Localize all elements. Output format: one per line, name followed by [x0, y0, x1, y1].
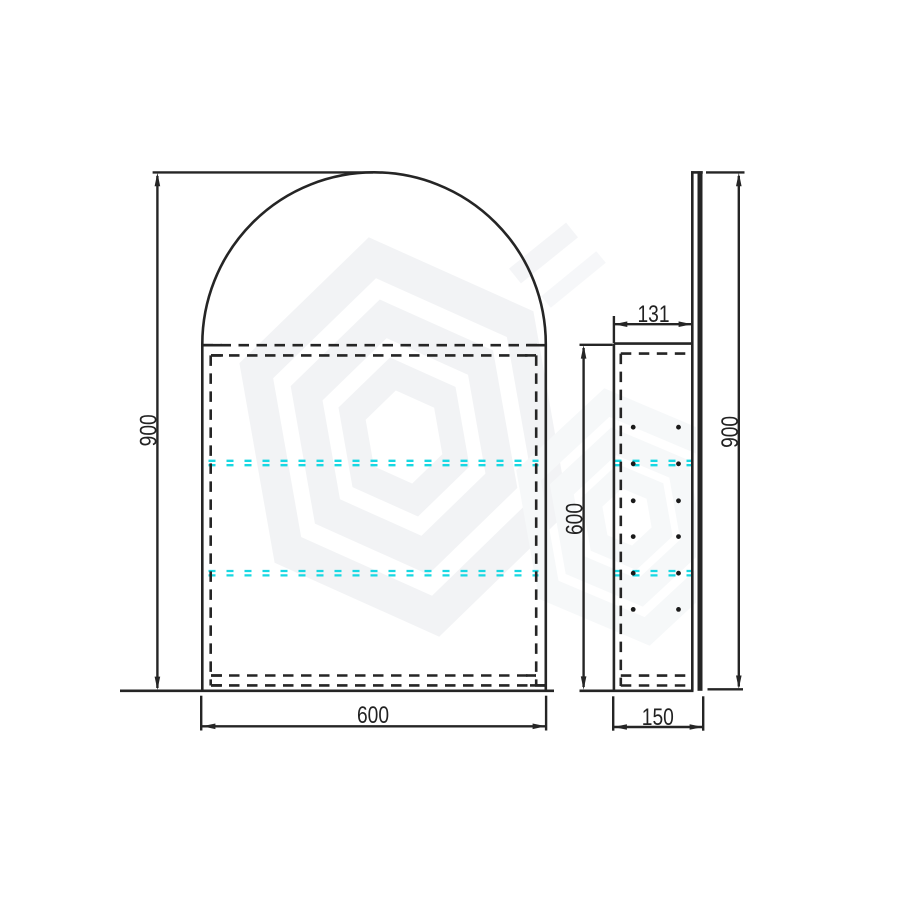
svg-text:150: 150	[642, 703, 674, 731]
svg-text:600: 600	[560, 503, 588, 535]
svg-text:600: 600	[357, 701, 389, 729]
svg-text:131: 131	[637, 300, 669, 328]
svg-text:900: 900	[716, 416, 744, 448]
svg-text:900: 900	[134, 414, 162, 446]
